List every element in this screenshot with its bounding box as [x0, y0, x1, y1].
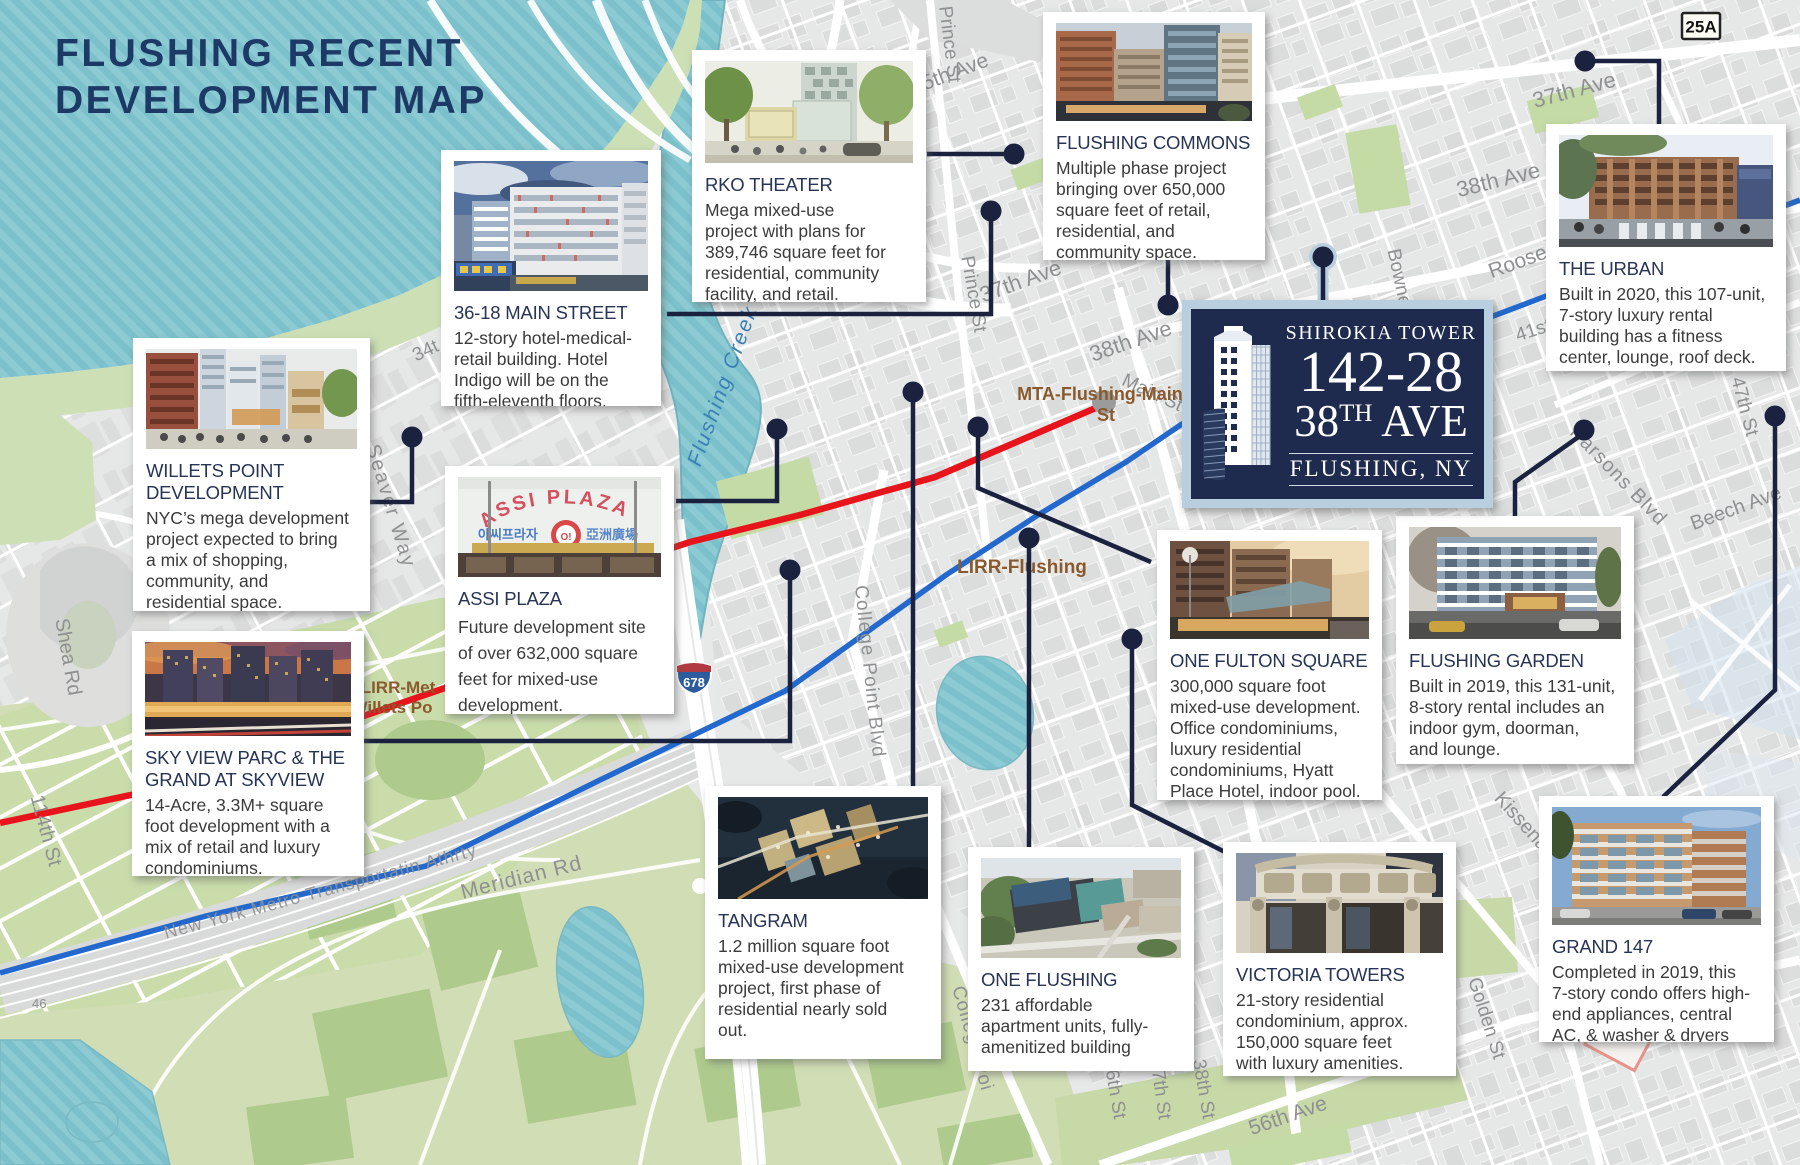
svg-text:亞洲廣場: 亞洲廣場: [586, 527, 638, 542]
svg-text:아씨프라자: 아씨프라자: [478, 527, 538, 542]
svg-text:O!: O!: [560, 532, 571, 543]
